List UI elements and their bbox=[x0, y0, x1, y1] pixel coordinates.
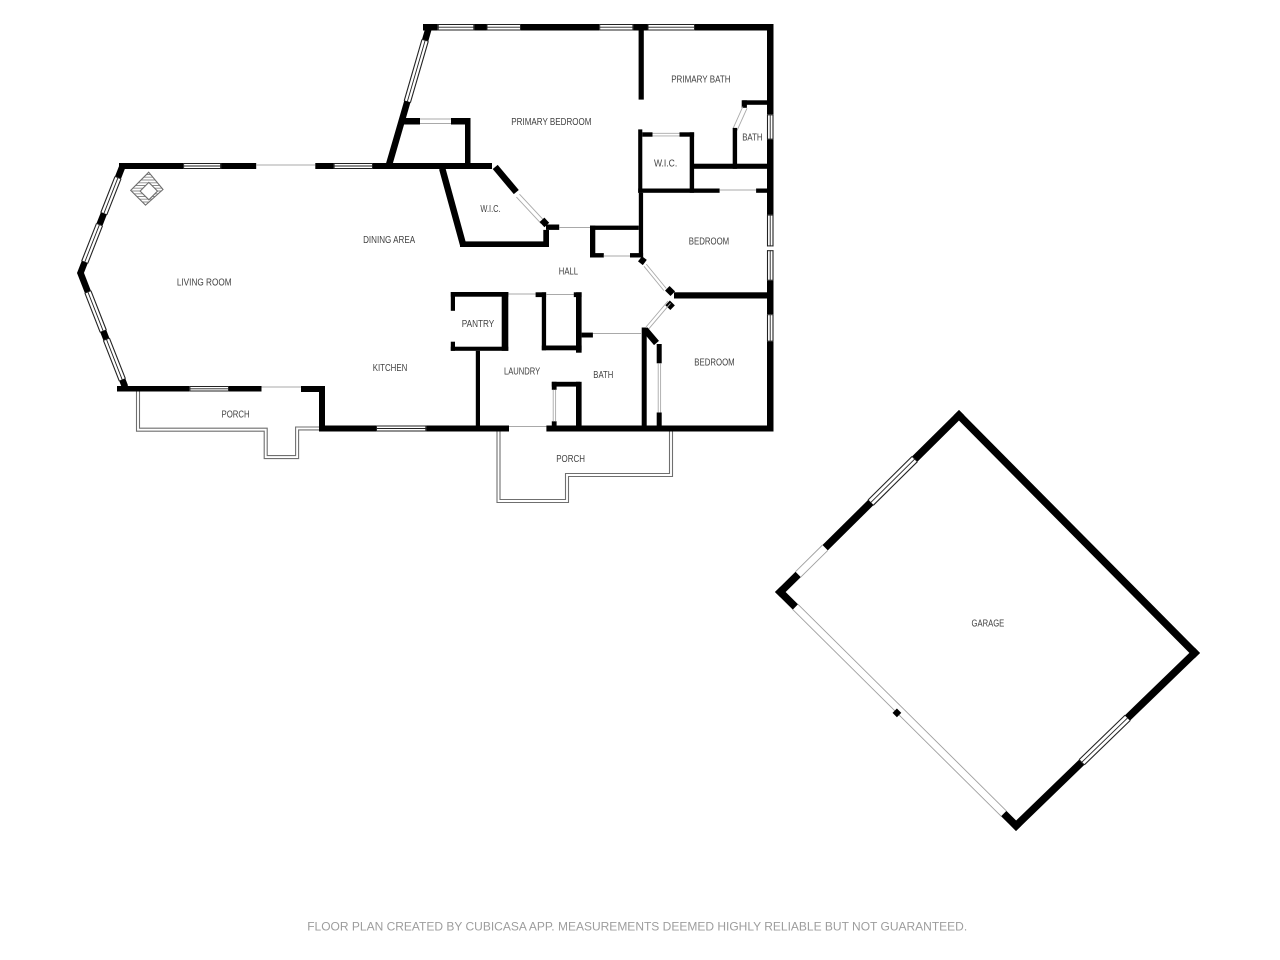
svg-text:W.I.C.: W.I.C. bbox=[480, 204, 500, 215]
svg-text:LAUNDRY: LAUNDRY bbox=[504, 367, 540, 378]
svg-text:LIVING ROOM: LIVING ROOM bbox=[177, 278, 232, 289]
svg-text:BATH: BATH bbox=[742, 132, 762, 143]
svg-text:BEDROOM: BEDROOM bbox=[694, 358, 734, 369]
svg-text:BEDROOM: BEDROOM bbox=[689, 236, 729, 247]
svg-text:PANTRY: PANTRY bbox=[462, 319, 495, 330]
svg-text:PRIMARY BEDROOM: PRIMARY BEDROOM bbox=[511, 117, 591, 128]
svg-text:PORCH: PORCH bbox=[222, 410, 250, 421]
svg-text:DINING AREA: DINING AREA bbox=[363, 235, 415, 246]
svg-text:FLOOR PLAN CREATED BY CUBICASA: FLOOR PLAN CREATED BY CUBICASA APP. MEAS… bbox=[307, 920, 967, 934]
svg-text:GARAGE: GARAGE bbox=[972, 619, 1005, 630]
svg-text:PORCH: PORCH bbox=[556, 454, 585, 465]
svg-text:W.I.C.: W.I.C. bbox=[654, 159, 677, 170]
svg-text:BATH: BATH bbox=[593, 370, 613, 381]
svg-text:HALL: HALL bbox=[559, 266, 578, 277]
svg-text:KITCHEN: KITCHEN bbox=[373, 363, 408, 374]
svg-text:PRIMARY BATH: PRIMARY BATH bbox=[671, 75, 730, 86]
